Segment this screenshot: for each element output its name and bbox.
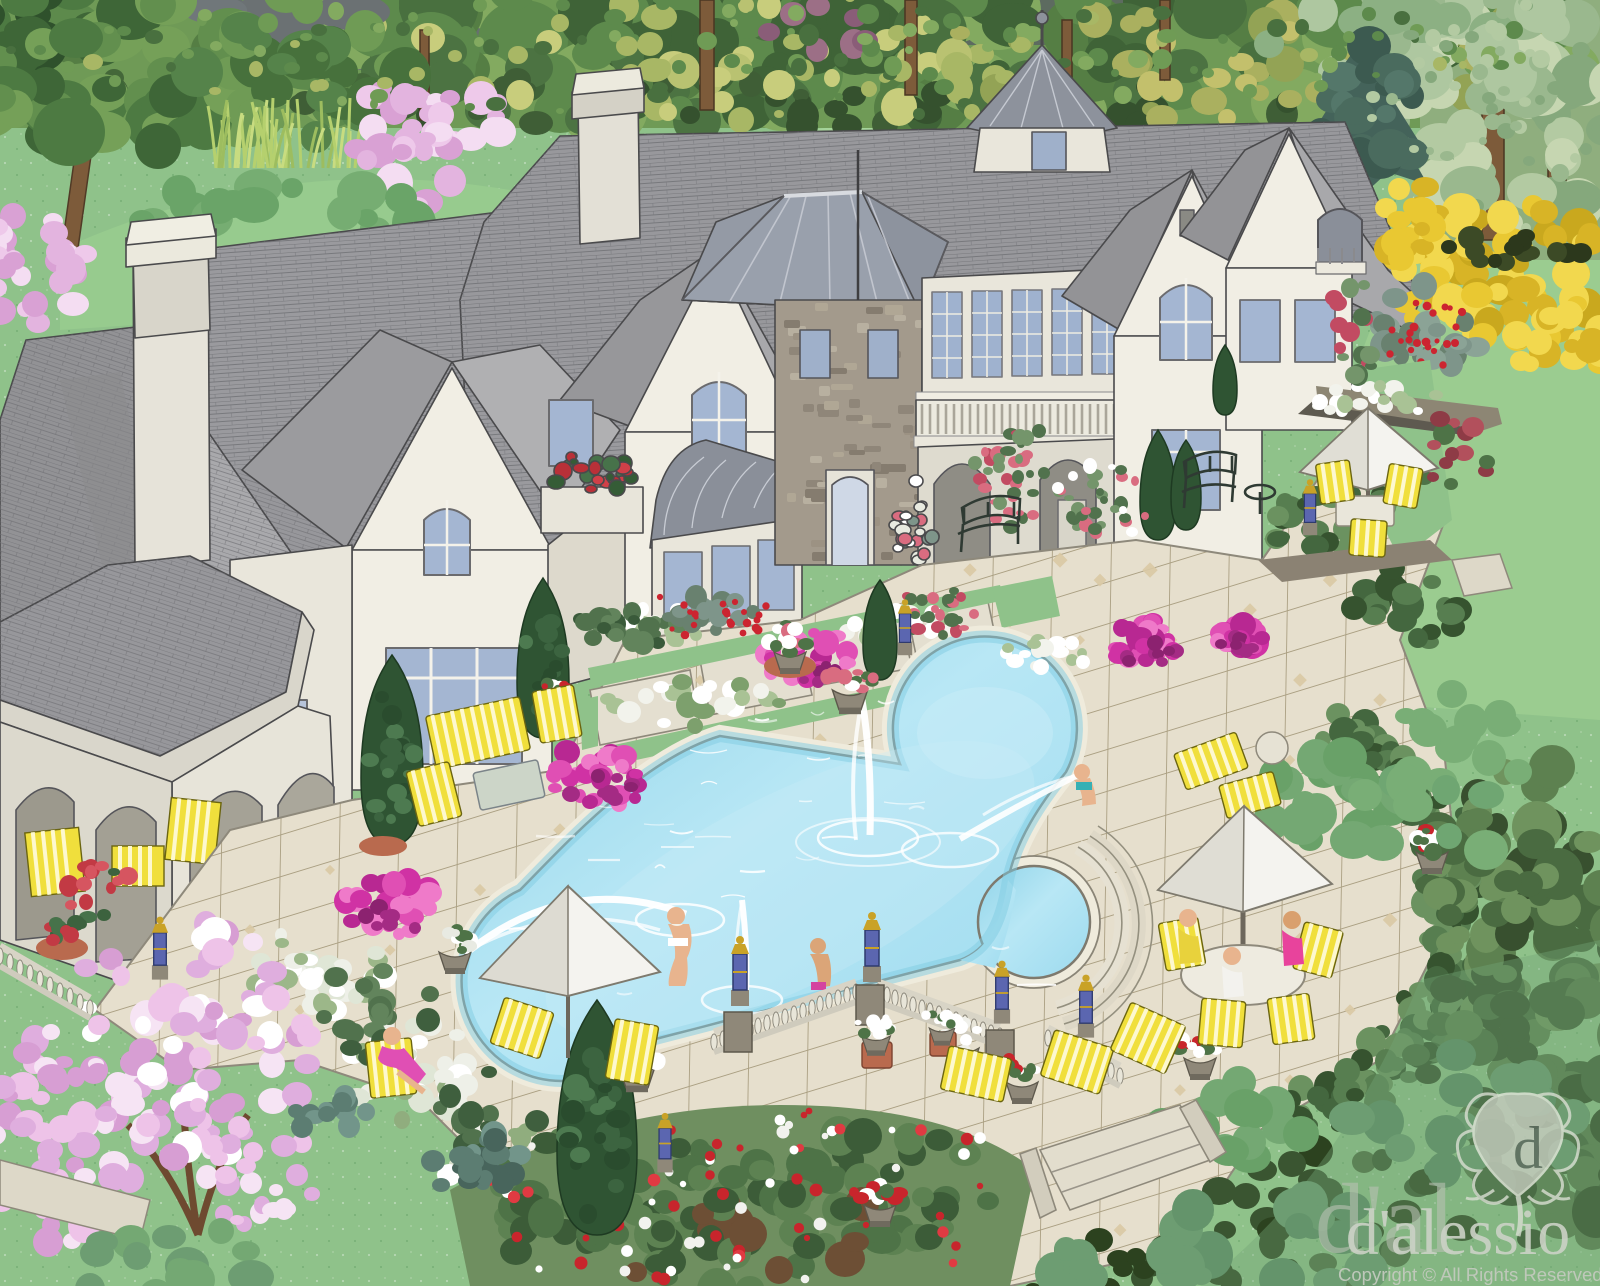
svg-text:d'alessio: d'alessio xyxy=(1346,1196,1571,1269)
svg-text:Copyright © All Rights Reserve: Copyright © All Rights Reserved xyxy=(1338,1264,1600,1285)
svg-text:d: d xyxy=(1513,1115,1543,1181)
